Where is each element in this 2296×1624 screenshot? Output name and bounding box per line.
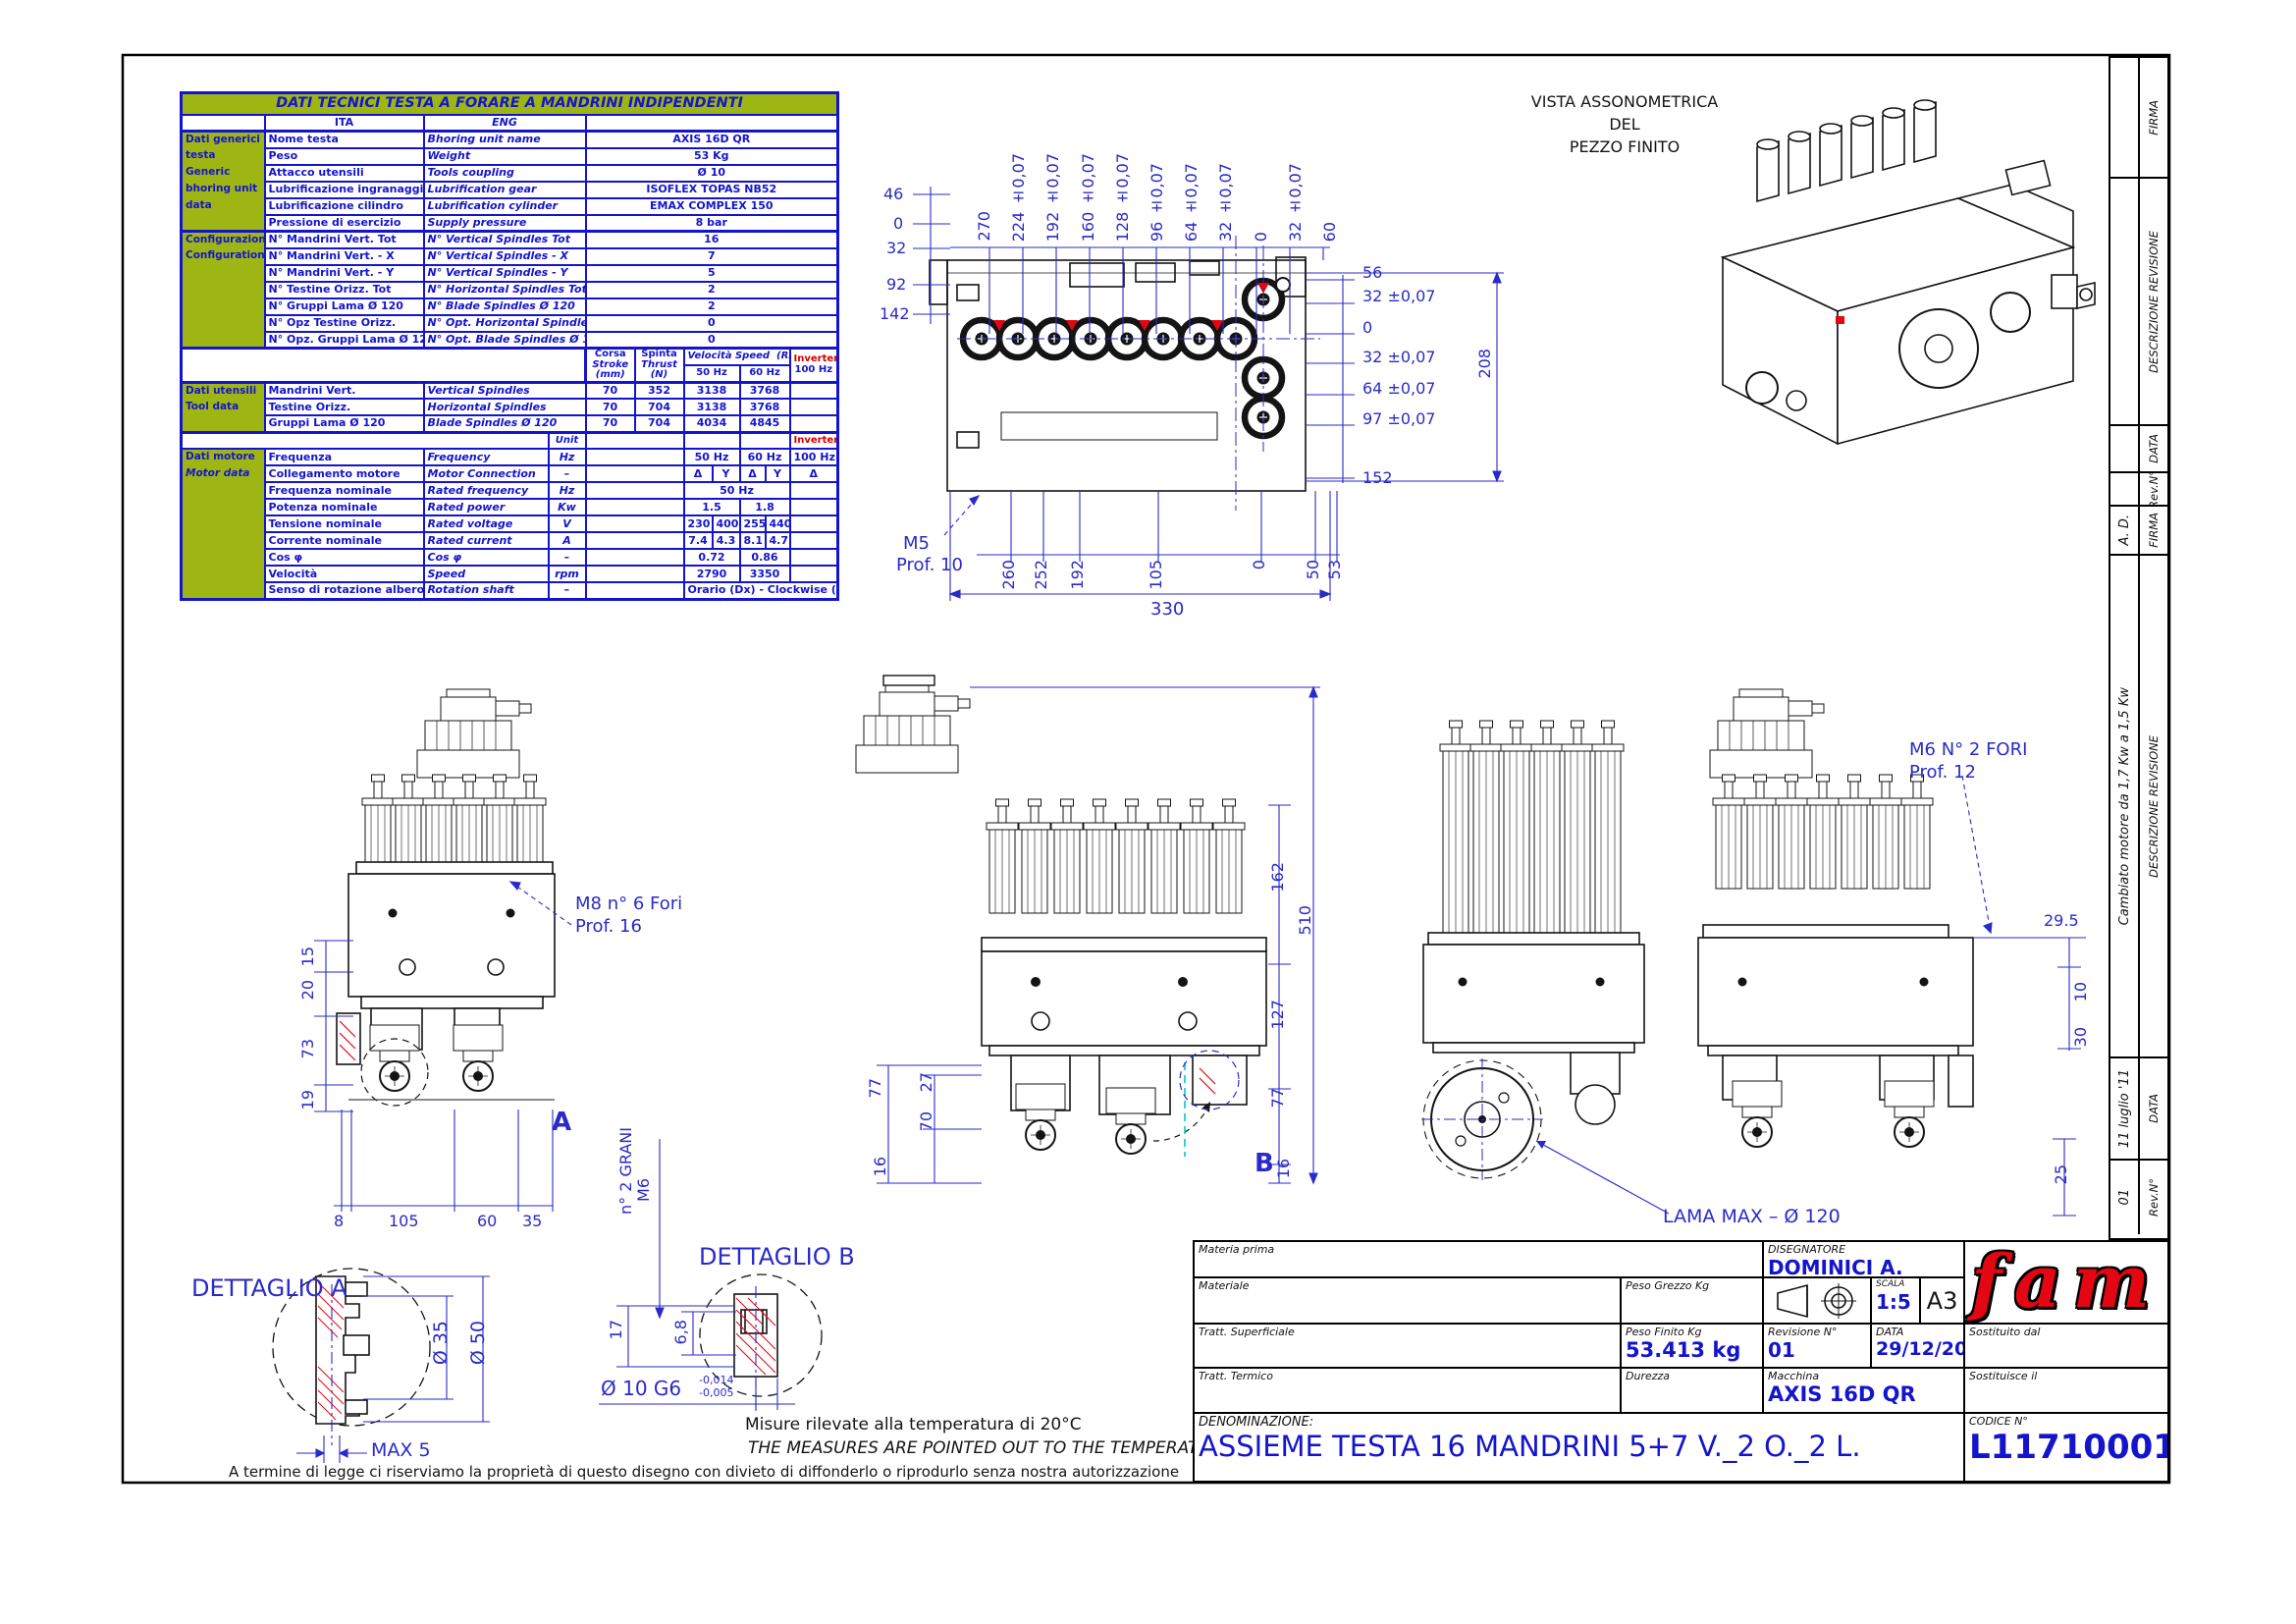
rev-label: Rev.N°	[2147, 473, 2161, 505]
ita-label: Pressione di esercizio	[265, 215, 424, 232]
unit: –	[549, 549, 586, 566]
iso-title-line2: DEL	[1517, 113, 1733, 135]
value: 7.4	[684, 532, 713, 549]
group-label: testa	[182, 148, 265, 165]
thrust-value: 704	[635, 399, 684, 415]
value: 4.3	[713, 532, 740, 549]
ita-label: Collegamento motore	[265, 465, 424, 482]
group-label: Dati motore	[182, 449, 265, 465]
table-title: DATI TECNICI TESTA A FORARE A MANDRINI I…	[182, 93, 838, 115]
table-row: Configurazione N° Mandrini Vert. Tot N° …	[182, 232, 838, 248]
descr-label: DESCRIZIONE REVISIONE	[2147, 231, 2161, 373]
disegnatore-value: DOMINICI A.	[1768, 1256, 1959, 1278]
value: 100 Hz	[790, 449, 838, 465]
group-label	[182, 282, 265, 298]
table-row: N° Mandrini Vert. - Y N° Vertical Spindl…	[182, 265, 838, 282]
group-label	[182, 332, 265, 349]
dim-label: 8	[334, 1214, 344, 1229]
technical-data-table: DATI TECNICI TESTA A FORARE A MANDRINI I…	[180, 91, 839, 601]
dim-label: 97 ±0,07	[1362, 411, 1435, 427]
table-row: N° Gruppi Lama Ø 120 N° Blade Spindles Ø…	[182, 298, 838, 315]
value: 255	[740, 515, 766, 532]
unit: Hz	[549, 449, 586, 465]
eng-label: N° Vertical Spindles - X	[424, 248, 586, 265]
thread-callout: M8 n° 6 Fori	[575, 895, 682, 913]
eng-label: Rated current	[424, 532, 549, 549]
top-view-top-dimensions: 270224 ±0,07192 ±0,07160 ±0,07128 ±0,079…	[977, 77, 1338, 242]
value: 440	[766, 515, 790, 532]
value: 0	[586, 332, 838, 349]
macchina-label: Macchina	[1768, 1371, 1959, 1382]
sostituito-label: Sostituito dal	[1969, 1326, 2163, 1338]
value: 8.1	[740, 532, 766, 549]
sostituisce-cell: Sostituisce il	[1963, 1367, 2169, 1414]
table-row: N° Opz. Gruppi Lama Ø 120 N° Opt. Blade …	[182, 332, 838, 349]
unit: Kw	[549, 499, 586, 515]
ita-label: Senso di rotazione albero	[265, 582, 424, 599]
dim-label: 70	[919, 1111, 934, 1131]
note-temperature-ita: Misure rilevate alla temperatura di 20°C	[745, 1417, 1082, 1434]
dim-label: 30	[2073, 1027, 2089, 1047]
ita-label: N° Mandrini Vert. - Y	[265, 265, 424, 282]
ita-label: Testine Orizz.	[265, 399, 424, 415]
durezza-cell: Durezza	[1620, 1367, 1764, 1414]
ita-label: N° Opz. Gruppi Lama Ø 120	[265, 332, 424, 349]
dim-label: 105	[1148, 560, 1164, 590]
thread-depth-callout: Prof. 12	[1909, 764, 1976, 782]
corsa-header: CorsaStroke(mm)	[586, 349, 635, 383]
denominazione-cell: DENOMINAZIONE: ASSIEME TESTA 16 MANDRINI…	[1193, 1412, 1965, 1483]
dim-label: 16	[873, 1157, 888, 1176]
ita-label: Peso	[265, 148, 424, 165]
speed60-value: 4845	[740, 415, 790, 432]
dim-label: 152	[1362, 470, 1393, 486]
value: 0.86	[740, 549, 790, 566]
eng-label: Supply pressure	[424, 215, 586, 232]
value: 5	[586, 265, 838, 282]
detail-a-title: DETTAGLIO A	[191, 1276, 347, 1300]
iso-title-line1: VISTA ASSONOMETRICA	[1517, 90, 1733, 113]
col-header-eng: ENG	[424, 115, 586, 132]
eng-label: N° Opt. Blade Spindles Ø 120	[424, 332, 586, 349]
eng-label: N° Vertical Spindles Tot	[424, 232, 586, 248]
eng-label: Bhoring unit name	[424, 132, 586, 148]
macchina-value: AXIS 16D QR	[1768, 1382, 1959, 1406]
eng-label: Motor Connection	[424, 465, 549, 482]
dim-label: 77	[868, 1078, 883, 1098]
scala-cell: SCALA 1:5	[1870, 1276, 1921, 1325]
value: Y	[766, 465, 790, 482]
dim-label: 60	[1322, 222, 1338, 242]
eng-label: N° Horizontal Spindles Tot	[424, 282, 586, 298]
macchina-cell: Macchina AXIS 16D QR	[1762, 1367, 1965, 1414]
table-row: Pressione di esercizio Supply pressure 8…	[182, 215, 838, 232]
data-label: DATA	[2147, 1094, 2161, 1123]
value: EMAX COMPLEX 150	[586, 198, 838, 215]
durezza-label: Durezza	[1626, 1371, 1758, 1382]
value: 1.5	[684, 499, 740, 515]
dim-label: 64 ±0,07	[1362, 381, 1435, 397]
tolerance-lower: -0,005	[699, 1387, 733, 1398]
dim-label: 92	[886, 277, 906, 293]
dim-label: 64 ±0,07	[1184, 163, 1200, 242]
stroke-value: 70	[586, 399, 635, 415]
dim-label: 32 ±0,07	[1362, 289, 1435, 304]
dim-label: 162	[1270, 862, 1286, 893]
ita-label: N° Testine Orizz. Tot	[265, 282, 424, 298]
value: 16	[586, 232, 838, 248]
value: Δ	[790, 465, 838, 482]
group-label: Dati utensili	[182, 382, 265, 399]
peso-finito-label: Peso Finito Kg	[1626, 1326, 1758, 1338]
dim-label: 32 ±0,07	[1362, 350, 1435, 365]
group-label: Tool data	[182, 399, 265, 415]
dim-label: 224 ±0,07	[1011, 153, 1027, 242]
group-label: Dati generici	[182, 132, 265, 148]
dim-label: 208	[1477, 349, 1493, 379]
revisione-cell: Revisione N° 01	[1762, 1323, 1872, 1369]
generic-data-rows: Dati generici Nome testa Bhoring unit na…	[182, 132, 838, 232]
group-label	[182, 415, 265, 432]
tratt-termico-label: Tratt. Termico	[1199, 1371, 1616, 1382]
table-row: N° Testine Orizz. Tot N° Horizontal Spin…	[182, 282, 838, 298]
detail-letter-b: B	[1255, 1151, 1274, 1176]
revision1-data-cell: DATA	[2110, 426, 2167, 473]
peso-finito-value: 53.413 kg	[1626, 1338, 1758, 1362]
dim-label: 330	[1150, 601, 1184, 619]
value: 60 Hz	[740, 449, 790, 465]
firma-label: FIRMA	[2147, 100, 2161, 135]
unit: Hz	[549, 482, 586, 499]
revision-strip: FIRMA DESCRIZIONE REVISIONE DATA Rev.N° …	[2109, 56, 2169, 1240]
value: 2	[586, 298, 838, 315]
peso-grezzo-cell: Peso Grezzo Kg	[1620, 1276, 1764, 1325]
ita-label: Velocità	[265, 566, 424, 582]
thread-depth-callout: Prof. 10	[896, 557, 963, 574]
revision2-rev-value: 01	[2117, 1189, 2132, 1206]
value: 4.7	[766, 532, 790, 549]
dim-label: 53	[1327, 560, 1343, 579]
eng-label: Blade Spindles Ø 120	[424, 415, 586, 432]
dim-label: 96 ±0,07	[1149, 163, 1165, 242]
speed50-value: 3138	[684, 399, 740, 415]
dim-label: 10	[2073, 982, 2089, 1001]
materia-prima-cell: Materia prima	[1193, 1240, 1764, 1278]
rev-label: Rev.N°	[2147, 1178, 2161, 1217]
value	[790, 515, 838, 532]
thrust-value: 704	[635, 415, 684, 432]
tolerance-upper: -0,014	[699, 1375, 733, 1385]
revision2-data-cell: 11 luglio '11 DATA	[2110, 1058, 2167, 1161]
dim-label: 16	[1276, 1159, 1292, 1178]
sostituisce-label: Sostituisce il	[1969, 1371, 2163, 1382]
projection-cell	[1762, 1276, 1872, 1325]
spinta-header: SpintaThrust(N)	[635, 349, 684, 383]
dim-label: 0	[893, 216, 903, 232]
ita-label: N° Mandrini Vert. Tot	[265, 232, 424, 248]
value	[790, 532, 838, 549]
dim-label: 105	[389, 1214, 419, 1229]
ita-label: Nome testa	[265, 132, 424, 148]
eng-label: Speed	[424, 566, 549, 582]
fam-logo: fam	[1971, 1246, 2162, 1319]
value: 0.72	[684, 549, 740, 566]
unit-header: Unit	[549, 432, 586, 449]
speed-header: Velocità Speed (RPM)	[684, 349, 790, 365]
group-label	[182, 215, 265, 232]
data-label: DATA	[1876, 1326, 1959, 1338]
tratt-superficiale-label: Tratt. Superficiale	[1199, 1326, 1616, 1338]
ita-label: N° Mandrini Vert. - X	[265, 248, 424, 265]
first-angle-projection-icon	[1770, 1281, 1864, 1321]
dim-label: MAX 5	[371, 1441, 431, 1460]
group-label	[182, 298, 265, 315]
dim-label: 260	[1001, 560, 1017, 590]
motor-section: Unit Inverter Dati motore Frequenza Freq…	[182, 432, 838, 599]
revision2-rev-cell: 01 Rev.N°	[2110, 1161, 2167, 1234]
dim-label: 270	[977, 211, 992, 242]
dim-label: 27	[919, 1072, 934, 1092]
firma-label: FIRMA	[2147, 513, 2161, 548]
formato-cell: A3	[1919, 1276, 1965, 1325]
table-row: Gruppi Lama Ø 120 Blade Spindles Ø 120 7…	[182, 415, 838, 432]
dim-label: 0	[1362, 320, 1372, 336]
materiale-cell: Materiale	[1193, 1276, 1622, 1325]
detail-b-title: DETTAGLIO B	[699, 1245, 855, 1269]
ita-label: N° Gruppi Lama Ø 120	[265, 298, 424, 315]
ita-label: Cos φ	[265, 549, 424, 566]
ita-label: N° Opz Testine Orizz.	[265, 315, 424, 332]
ita-label: Attacco utensili	[265, 165, 424, 182]
codice-cell: CODICE N° L11710001	[1963, 1412, 2169, 1483]
table-row: testa Peso Weight 53 Kg	[182, 148, 838, 165]
speed50-value: 4034	[684, 415, 740, 432]
unit: rpm	[549, 566, 586, 582]
note-legal: A termine di legge ci riserviamo la prop…	[229, 1465, 1179, 1480]
title-block: Materia prima DISEGNATORE DOMINICI A. fa…	[1193, 1240, 2169, 1483]
speed60-value: 3768	[740, 382, 790, 399]
value: ISOFLEX TOPAS NB52	[586, 182, 838, 198]
thread-callout: M5	[903, 535, 930, 553]
revision2-data-value: 11 luglio '11	[2117, 1069, 2132, 1148]
value: 7	[586, 248, 838, 265]
value: Y	[713, 465, 740, 482]
group-label	[182, 265, 265, 282]
dim-label: 127	[1270, 1000, 1286, 1030]
eng-label: Weight	[424, 148, 586, 165]
tool-header-band: CorsaStroke(mm) SpintaThrust(N) Velocità…	[182, 349, 838, 383]
col-header-ita: ITA	[265, 115, 424, 132]
table-row: N° Opz Testine Orizz. N° Opt. Horizontal…	[182, 315, 838, 332]
scala-label: SCALA	[1876, 1280, 1915, 1290]
dim-label: 20	[300, 980, 316, 1000]
dim-label: 0	[1254, 232, 1269, 242]
formato-value: A3	[1927, 1287, 1958, 1315]
dim-label: 160 ±0,07	[1081, 153, 1096, 242]
fit-label: Ø 10 G6	[601, 1379, 681, 1398]
value	[790, 499, 838, 515]
group-label: data	[182, 198, 265, 215]
scala-value: 1:5	[1876, 1290, 1915, 1314]
unit: –	[549, 582, 586, 599]
eng-label: Rotation shaft	[424, 582, 549, 599]
dim-label: 128 ±0,07	[1115, 153, 1131, 242]
revision2-descr-cell: Cambiato motore da 1,7 Kw a 1,5 Kw DESCR…	[2110, 556, 2167, 1058]
dim-label: 35	[522, 1214, 542, 1229]
iso-title-line3: PEZZO FINITO	[1517, 135, 1733, 158]
materia-prima-label: Materia prima	[1199, 1244, 1758, 1256]
value: 50 Hz	[684, 482, 790, 499]
descr-label: DESCRIZIONE REVISIONE	[2147, 735, 2161, 878]
thread-callout: M6 N° 2 FORI	[1909, 741, 2027, 759]
peso-finito-cell: Peso Finito Kg 53.413 kg	[1620, 1323, 1764, 1369]
inverter-value	[790, 399, 838, 415]
eng-label: Vertical Spindles	[424, 382, 586, 399]
data-cell: DATA 29/12/2010	[1870, 1323, 1965, 1369]
iso-view-title: VISTA ASSONOMETRICA DEL PEZZO FINITO	[1517, 90, 1733, 159]
eng-label: N° Opt. Horizontal Spindles	[424, 315, 586, 332]
value: 53 Kg	[586, 148, 838, 165]
value: Δ	[740, 465, 766, 482]
table-row: Dati generici Nome testa Bhoring unit na…	[182, 132, 838, 148]
eng-label: Cos φ	[424, 549, 549, 566]
ita-label: Frequenza	[265, 449, 424, 465]
disegnatore-cell: DISEGNATORE DOMINICI A.	[1762, 1240, 1965, 1278]
dim-label: 19	[300, 1090, 316, 1110]
value	[790, 566, 838, 582]
unit: A	[549, 532, 586, 549]
dim-label: 25	[2054, 1164, 2069, 1184]
hz60-header: 60 Hz	[740, 365, 790, 382]
value: 0	[586, 315, 838, 332]
table-row: Dati utensili Mandrini Vert. Vertical Sp…	[182, 382, 838, 399]
ita-label: Gruppi Lama Ø 120	[265, 415, 424, 432]
group-label: Motor data	[182, 465, 265, 482]
dim-label: 192 ±0,07	[1045, 153, 1061, 242]
value: 8 bar	[586, 215, 838, 232]
stroke-value: 70	[586, 382, 635, 399]
denominazione-label: DENOMINAZIONE:	[1199, 1416, 1959, 1430]
inverter-value	[790, 415, 838, 432]
data-value: 29/12/2010	[1876, 1338, 1959, 1360]
ita-label: Potenza nominale	[265, 499, 424, 515]
value: 3350	[740, 566, 790, 582]
dim-label: 50	[1306, 560, 1321, 579]
revision1-rev-cell: Rev.N°	[2110, 473, 2167, 507]
group-label: Configuration	[182, 248, 265, 265]
value: 1.8	[740, 499, 790, 515]
eng-label: Lubrification cylinder	[424, 198, 586, 215]
detail-letter-a: A	[552, 1110, 571, 1135]
value: AXIS 16D QR	[586, 132, 838, 148]
config-data-rows: Configurazione N° Mandrini Vert. Tot N° …	[182, 232, 838, 349]
dim-label: 510	[1298, 905, 1313, 936]
speed50-value: 3138	[684, 382, 740, 399]
dim-label: 73	[300, 1039, 316, 1058]
denominazione-value: ASSIEME TESTA 16 MANDRINI 5+7 V._2 O._2 …	[1199, 1430, 1959, 1463]
col-header-value	[586, 115, 838, 132]
tratt-superficiale-cell: Tratt. Superficiale	[1193, 1323, 1622, 1369]
engineering-drawing-sheet: { "colors":{"table_blue":"#1414cc","cad_…	[0, 0, 2296, 1624]
dim-label: 60	[477, 1214, 497, 1229]
inverter-label: Inverter	[790, 432, 838, 449]
dim-label: 56	[1362, 265, 1382, 281]
revisione-value: 01	[1768, 1338, 1866, 1362]
thread-callout: M6	[636, 1178, 652, 1202]
dim-label: 15	[300, 947, 316, 966]
dim-label: 32	[886, 241, 906, 256]
inverter-header: Inverter100 Hz	[790, 349, 838, 383]
unit: –	[549, 465, 586, 482]
speed60-value: 3768	[740, 399, 790, 415]
dim-label: 0	[1252, 560, 1267, 569]
dim-label: 32 ±0,07	[1288, 163, 1304, 242]
dim-label: 252	[1034, 560, 1049, 590]
revision1-descr-cell: DESCRIZIONE REVISIONE	[2110, 179, 2167, 426]
eng-label: N° Blade Spindles Ø 120	[424, 298, 586, 315]
eng-label: Rated voltage	[424, 515, 549, 532]
blade-max-label: LAMA MAX – Ø 120	[1663, 1208, 1841, 1226]
value: 400	[713, 515, 740, 532]
revision2-descr-value: Cambiato motore da 1,7 Kw a 1,5 Kw	[2117, 687, 2132, 925]
stroke-value: 70	[586, 415, 635, 432]
dim-label: 6,8	[673, 1320, 689, 1344]
thread-depth-callout: Prof. 16	[575, 918, 642, 936]
ita-label: Mandrini Vert.	[265, 382, 424, 399]
value: 2790	[684, 566, 740, 582]
unit: V	[549, 515, 586, 532]
inverter-value	[790, 382, 838, 399]
logo-cell: fam	[1963, 1240, 2169, 1325]
ita-label: Tensione nominale	[265, 515, 424, 532]
dim-label: 77	[1270, 1088, 1286, 1108]
value: 230	[684, 515, 713, 532]
hz50-header: 50 Hz	[684, 365, 740, 382]
tool-data-rows: Dati utensili Mandrini Vert. Vertical Sp…	[182, 382, 838, 432]
codice-label: CODICE N°	[1969, 1416, 2163, 1428]
revision2-firma-cell: A. D. FIRMA	[2110, 507, 2167, 556]
eng-label: N° Vertical Spindles - Y	[424, 265, 586, 282]
ita-label: Corrente nominale	[265, 532, 424, 549]
table-row: Generic Attacco utensili Tools coupling …	[182, 165, 838, 182]
dim-label: 32 ±0,07	[1218, 163, 1234, 242]
dim-label: 46	[883, 187, 903, 202]
eng-label: Tools coupling	[424, 165, 586, 182]
eng-label: Rated power	[424, 499, 549, 515]
materiale-label: Materiale	[1199, 1280, 1616, 1292]
dim-label: Ø 50	[469, 1321, 488, 1365]
tratt-termico-cell: Tratt. Termico	[1193, 1367, 1622, 1414]
table-row: Tool data Testine Orizz. Horizontal Spin…	[182, 399, 838, 415]
group-label	[182, 315, 265, 332]
value: 2	[586, 282, 838, 298]
thrust-value: 352	[635, 382, 684, 399]
eng-label: Horizontal Spindles	[424, 399, 586, 415]
ita-label: Frequenza nominale	[265, 482, 424, 499]
eng-label: Frequency	[424, 449, 549, 465]
group-label: bhoring unit	[182, 182, 265, 198]
dim-label: 17	[609, 1320, 624, 1339]
dim-label: Ø 35	[432, 1321, 451, 1365]
dim-label: 192	[1070, 560, 1086, 590]
revision1-firma-cell: FIRMA	[2110, 58, 2167, 179]
ita-label: Lubrificazione ingranaggi	[265, 182, 424, 198]
value	[790, 549, 838, 566]
disegnatore-label: DISEGNATORE	[1768, 1244, 1959, 1256]
data-label: DATA	[2147, 434, 2161, 463]
peso-grezzo-label: Peso Grezzo Kg	[1626, 1280, 1758, 1292]
value: Orario (Dx) - Clockwise (Rh)	[684, 582, 838, 599]
